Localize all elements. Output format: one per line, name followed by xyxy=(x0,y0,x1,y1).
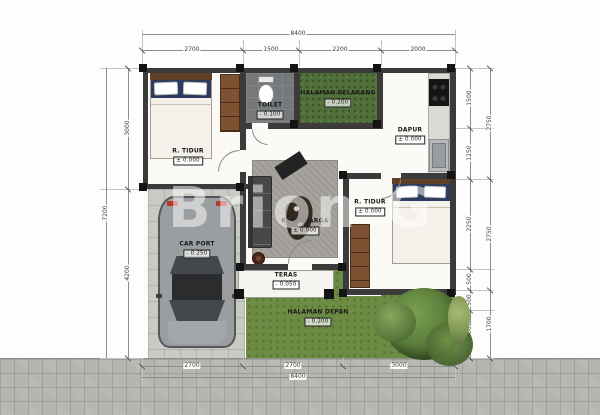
wardrobe xyxy=(350,224,370,288)
room-elevation: - 0.050 xyxy=(273,280,300,289)
dim-right-outer-2: 2750 xyxy=(487,225,493,242)
room-elevation: - 0.200 xyxy=(325,98,352,107)
room-name: R. TIDUR xyxy=(354,199,386,206)
column xyxy=(290,64,298,72)
room-elevation: - 0.250 xyxy=(184,249,211,258)
dim-left-total: 7200 xyxy=(103,204,109,221)
room-elevation: ± 0.000 xyxy=(290,226,320,235)
bed-headboard xyxy=(150,73,212,80)
dim-right-inner-3: 2250 xyxy=(467,215,473,232)
room-name: R. TIDUR xyxy=(172,148,204,155)
dim-right-inner-2: 1250 xyxy=(467,144,473,161)
dim-right-outer-1: 2750 xyxy=(487,114,493,131)
wall-toilet-bottom-a xyxy=(246,123,252,129)
car-rear-window xyxy=(170,256,224,274)
taillight-icon xyxy=(167,201,178,206)
wall-bedroom1-right-upper xyxy=(240,68,246,150)
column xyxy=(236,64,244,72)
room-elevation: ± 0.000 xyxy=(355,207,385,216)
wall-bedroom1-bottom xyxy=(143,184,248,189)
taillight-icon xyxy=(216,201,227,206)
car-roof xyxy=(172,274,222,300)
column xyxy=(447,64,455,72)
dim-right-inner-4: 500 xyxy=(467,272,473,285)
column xyxy=(290,120,298,128)
column xyxy=(339,171,347,179)
cooktop-icon xyxy=(429,79,449,106)
room-label-carport: CAR PORT - 0.250 xyxy=(179,241,214,258)
room-name: HALAMAN BELAKANG xyxy=(300,90,375,97)
column xyxy=(338,263,346,271)
dim-bottom-2: 2700 xyxy=(284,363,301,369)
column xyxy=(339,289,347,297)
dim-right-inner-1: 1500 xyxy=(467,89,473,106)
pillow xyxy=(183,82,207,96)
dim-top-total: 8400 xyxy=(289,31,306,37)
room-elevation: - 0.200 xyxy=(305,317,332,326)
room-name: CAR PORT xyxy=(179,241,214,248)
toilet-tank xyxy=(258,76,274,83)
room-name: TERAS xyxy=(275,272,298,279)
car-windshield xyxy=(169,300,225,321)
room-name: TOILET xyxy=(258,102,283,109)
wall-right xyxy=(450,68,456,295)
dim-right-outer-3: 1700 xyxy=(487,315,493,332)
column xyxy=(447,171,455,179)
wall-bedroom2-left xyxy=(343,173,349,295)
column xyxy=(236,183,244,191)
dim-left-2: 4200 xyxy=(125,264,131,281)
wall-front-a xyxy=(240,264,288,270)
floor-plan-canvas: R. TIDUR ± 0.000 TOILET - 0.100 HALAMAN … xyxy=(0,0,600,415)
dim-top-4: 2000 xyxy=(409,47,426,53)
pillow xyxy=(424,186,446,199)
frontyard-grass xyxy=(246,296,381,358)
wall-backyard-bottom xyxy=(294,123,383,129)
room-elevation: - 0.100 xyxy=(257,110,284,119)
room-label-family: R. KELUARGA ± 0.000 xyxy=(281,218,328,235)
column xyxy=(139,183,147,191)
sink-basin xyxy=(432,143,446,168)
column xyxy=(236,263,244,271)
terrace-column xyxy=(234,289,244,299)
dimension-line xyxy=(128,68,129,358)
room-name: DAPUR xyxy=(398,127,423,134)
column xyxy=(373,120,381,128)
room-label-terrace: TERAS - 0.050 xyxy=(273,272,300,289)
wall-backyard-right xyxy=(377,68,383,128)
pillow xyxy=(154,82,178,96)
dim-bottom-3: 3000 xyxy=(390,363,407,369)
car-mirror xyxy=(156,294,162,298)
pillow xyxy=(396,186,418,199)
room-label-backyard: HALAMAN BELAKANG - 0.200 xyxy=(300,90,375,107)
sofa-backrest xyxy=(248,176,253,248)
dim-bottom-total: 8400 xyxy=(289,374,306,380)
room-elevation: ± 0.000 xyxy=(395,135,425,144)
car xyxy=(158,196,236,348)
room-name: HALAMAN DEPAN xyxy=(287,309,348,316)
column xyxy=(373,64,381,72)
duvet-fold xyxy=(393,207,451,208)
room-elevation: ± 0.000 xyxy=(173,156,203,165)
dim-top-3: 2200 xyxy=(331,47,348,53)
dim-left-1: 3000 xyxy=(125,119,131,136)
room-name: R. KELUARGA xyxy=(281,218,328,225)
dim-top-2: 1500 xyxy=(262,47,279,53)
car-hood xyxy=(168,321,226,344)
dim-bottom-1: 2700 xyxy=(183,363,200,369)
terrace-column xyxy=(324,289,334,299)
room-label-toilet: TOILET - 0.100 xyxy=(257,102,284,119)
duvet-fold xyxy=(151,104,211,105)
room-label-frontyard: HALAMAN DEPAN - 0.200 xyxy=(287,309,348,326)
dimension-line xyxy=(470,68,471,358)
wall-left xyxy=(143,68,148,189)
room-label-kitchen: DAPUR ± 0.000 xyxy=(395,127,425,144)
dim-top-1: 2700 xyxy=(183,47,200,53)
room-label-bedroom1: R. TIDUR ± 0.000 xyxy=(172,148,204,165)
column xyxy=(139,64,147,72)
wardrobe xyxy=(220,74,240,132)
wall-family-left xyxy=(240,189,246,270)
room-label-bedroom2: R. TIDUR ± 0.000 xyxy=(354,199,386,216)
wall-toilet-right xyxy=(294,68,300,128)
